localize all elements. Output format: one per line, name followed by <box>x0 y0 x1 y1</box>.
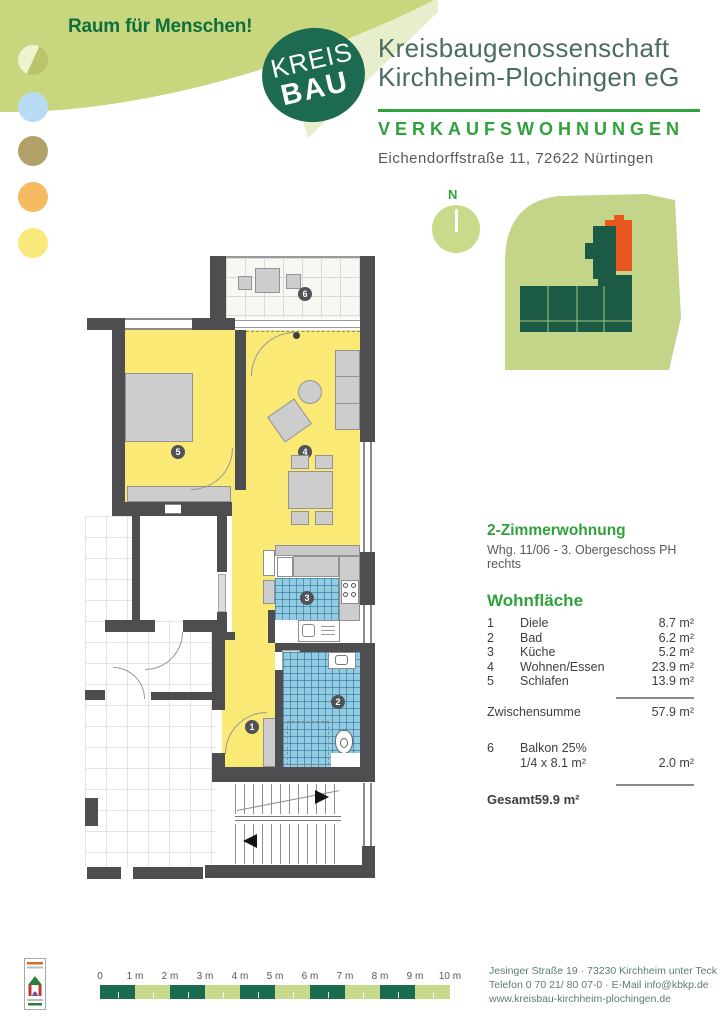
sofa <box>335 350 360 430</box>
scale-label: 9 m <box>398 971 432 982</box>
wall-segment <box>112 318 125 516</box>
dining-chair <box>291 511 309 525</box>
kitchen-counter <box>293 556 339 577</box>
hall-cabinet <box>263 550 275 576</box>
wardrobe <box>127 486 231 502</box>
scale-segment <box>135 985 170 999</box>
room-number: 4 <box>487 660 520 675</box>
scale-segment <box>100 985 135 999</box>
balcony-chair <box>238 276 252 290</box>
scale-label: 0 <box>83 971 117 982</box>
scale-label: 1 m <box>118 971 152 982</box>
floor-plan: 6 5 4 <box>85 250 385 890</box>
window <box>120 318 192 330</box>
company-line1: Kreisbaugenossenschaft <box>378 34 680 63</box>
balcony-chair <box>286 274 301 289</box>
total-value: 59.9 m² <box>535 792 580 807</box>
sink-basin <box>302 624 315 637</box>
stove-burner <box>351 583 356 588</box>
subtotal-value: 57.9 m² <box>652 705 694 720</box>
dot-orange <box>18 182 48 212</box>
wall-segment <box>275 670 283 767</box>
table-row: 4 Wohnen/Essen 23.9 m² <box>487 660 694 675</box>
building-notch <box>585 243 593 259</box>
company-name: Kreisbaugenossenschaft Kirchheim-Plochin… <box>378 34 680 92</box>
wall-segment <box>212 632 235 640</box>
total-label: Gesamt <box>487 792 535 807</box>
wall-segment <box>212 767 375 782</box>
scale-label: 10 m <box>433 971 467 982</box>
wall-segment <box>360 256 375 318</box>
scale-label: 8 m <box>363 971 397 982</box>
shower-outline <box>287 721 329 765</box>
wall-segment <box>268 610 275 643</box>
bath-ledge <box>331 753 360 767</box>
scale-segment <box>205 985 240 999</box>
room-area: 13.9 m² <box>652 674 694 689</box>
side-table-round <box>298 380 322 404</box>
room-badge-balcony: 6 <box>298 287 312 301</box>
scale-label: 5 m <box>258 971 292 982</box>
washbasin-bowl <box>335 655 348 665</box>
footer-phone-email: Telefon 0 70 21/ 80 07-0 · E-Mail info@k… <box>489 978 717 992</box>
total-row: Gesamt 59.9 m² <box>487 792 694 807</box>
stair-handrail <box>235 816 341 821</box>
room-number: 6 <box>487 741 520 756</box>
subtotal-divider <box>616 697 694 699</box>
stair-arrow-down-icon <box>243 834 257 848</box>
column-dot <box>293 332 300 339</box>
flyer-page: Raum für Menschen! KREIS BAU Kreisbaugen… <box>0 0 724 1024</box>
scale-bar: 0 1 m 2 m 3 m 4 m 5 m 6 m 7 m 8 m 9 m 10… <box>100 971 452 1001</box>
fridge <box>277 557 293 577</box>
room-name: Schlafen <box>520 674 652 689</box>
site-plan <box>503 190 703 375</box>
kitchen-counter <box>275 545 360 556</box>
balcony-formula-row: 1/4 x 8.1 m² 2.0 m² <box>487 756 694 771</box>
scale-segment <box>275 985 310 999</box>
neighbour-room <box>140 516 217 620</box>
wall-segment <box>360 317 375 442</box>
stove-burner <box>343 592 348 597</box>
apartment-title: 2-Zimmerwohnung <box>487 522 694 540</box>
balcony-area: 2.0 m² <box>659 756 694 771</box>
sofa-cushion-line <box>336 403 359 404</box>
wall-segment <box>132 516 140 620</box>
dot-green <box>18 45 48 75</box>
scale-segment <box>415 985 450 999</box>
wall-segment <box>212 753 225 767</box>
property-address: Eichendorffstraße 11, 72622 Nürtingen <box>378 150 654 167</box>
room-name: Diele <box>520 616 659 631</box>
window <box>165 504 181 514</box>
scale-segments <box>100 985 450 999</box>
balcony-formula: 1/4 x 8.1 m² <box>520 756 659 771</box>
dining-chair <box>291 455 309 469</box>
balcony-label: Balkon 25% <box>520 741 694 756</box>
scale-segment <box>380 985 415 999</box>
room-number: 5 <box>487 674 520 689</box>
apartment-details: 2-Zimmerwohnung Whg. 11/06 - 3. Obergesc… <box>487 522 694 807</box>
bed <box>125 373 193 442</box>
room-number: 1 <box>487 616 520 631</box>
window <box>363 442 372 552</box>
spacer <box>487 756 520 771</box>
wall-segment <box>360 552 375 605</box>
site-parcel <box>505 194 681 370</box>
dining-chair <box>315 455 333 469</box>
room-area: 5.2 m² <box>659 645 694 660</box>
wall-segment <box>360 643 375 767</box>
scale-label: 6 m <box>293 971 327 982</box>
hall-cabinet <box>263 580 275 604</box>
company-line2: Kirchheim-Plochingen eG <box>378 63 680 92</box>
window <box>363 783 372 846</box>
wall-segment <box>210 256 226 318</box>
scale-segment <box>310 985 345 999</box>
total-divider <box>616 784 694 786</box>
table-row: 1 Diele 8.7 m² <box>487 616 694 631</box>
footer-contact: Jesinger Straße 19 · 73230 Kirchheim unt… <box>489 964 717 1006</box>
dot-yellow <box>18 228 48 258</box>
wall-segment <box>360 846 375 866</box>
scale-label: 4 m <box>223 971 257 982</box>
table-row: 5 Schlafen 13.9 m² <box>487 674 694 689</box>
category-title: VERKAUFSWOHNUNGEN <box>378 119 684 140</box>
north-label: N <box>448 187 457 202</box>
room-number: 3 <box>487 645 520 660</box>
scale-label: 2 m <box>153 971 187 982</box>
building-upper-bar <box>593 226 616 279</box>
room-name: Küche <box>520 645 659 660</box>
room-badge-schlafen: 5 <box>171 445 185 459</box>
wall-segment <box>105 620 155 632</box>
apartment-subtitle: Whg. 11/06 - 3. Obergeschoss PH rechts <box>487 543 694 571</box>
room-number: 2 <box>487 631 520 646</box>
room-badge-bad: 2 <box>331 695 345 709</box>
room-area: 23.9 m² <box>652 660 694 675</box>
wall-segment <box>85 690 105 700</box>
wall-segment <box>205 865 375 878</box>
wall-segment <box>217 502 227 572</box>
stove-burner <box>343 583 348 588</box>
subtotal-label: Zwischensumme <box>487 705 652 720</box>
scale-label: 7 m <box>328 971 362 982</box>
scale-segment <box>345 985 380 999</box>
dining-chair <box>315 511 333 525</box>
sofa-cushion-line <box>336 376 359 377</box>
balcony-row: 6 Balkon 25% <box>487 741 694 756</box>
stove-burner <box>351 592 356 597</box>
table-row: 2 Bad 6.2 m² <box>487 631 694 646</box>
scale-label: 3 m <box>188 971 222 982</box>
dot-blue <box>18 92 48 122</box>
scale-segment <box>240 985 275 999</box>
balcony-table <box>255 268 280 293</box>
wall-segment <box>151 692 212 700</box>
area-section-title: Wohnfläche <box>487 591 694 611</box>
certification-emblem <box>24 958 46 1010</box>
dining-table <box>288 471 333 509</box>
wall-segment <box>183 620 225 632</box>
drainer-line <box>321 634 335 635</box>
footer-website: www.kreisbau-kirchheim-plochingen.de <box>489 992 717 1006</box>
room-badge-diele: 1 <box>245 720 259 734</box>
wall-segment <box>87 867 121 879</box>
tagline: Raum für Menschen! <box>68 16 252 38</box>
table-row: 3 Küche 5.2 m² <box>487 645 694 660</box>
wall-segment <box>192 318 235 330</box>
room-name: Wohnen/Essen <box>520 660 652 675</box>
green-divider <box>378 109 700 112</box>
wall-segment <box>133 867 203 879</box>
subtotal-row: Zwischensumme 57.9 m² <box>487 705 694 720</box>
room-area: 8.7 m² <box>659 616 694 631</box>
building-lower-block <box>520 286 632 332</box>
drainer-line <box>321 626 335 627</box>
footer-address: Jesinger Straße 19 · 73230 Kirchheim unt… <box>489 964 717 978</box>
balcony-door-window <box>235 320 360 328</box>
scale-segment <box>170 985 205 999</box>
wall-segment <box>235 330 246 490</box>
toilet-bowl <box>340 738 348 748</box>
door-leaf <box>218 574 226 612</box>
room-area: 6.2 m² <box>659 631 694 646</box>
room-name: Bad <box>520 631 659 646</box>
wall-segment <box>85 798 98 826</box>
dot-brown <box>18 136 48 166</box>
stair-arrow-up-icon <box>315 790 329 804</box>
window <box>363 605 372 643</box>
room-badge-kueche: 3 <box>300 591 314 605</box>
drainer-line <box>321 630 335 631</box>
north-needle <box>455 209 458 232</box>
balcony-threshold-dashed <box>246 331 360 332</box>
wall-segment <box>212 640 225 710</box>
